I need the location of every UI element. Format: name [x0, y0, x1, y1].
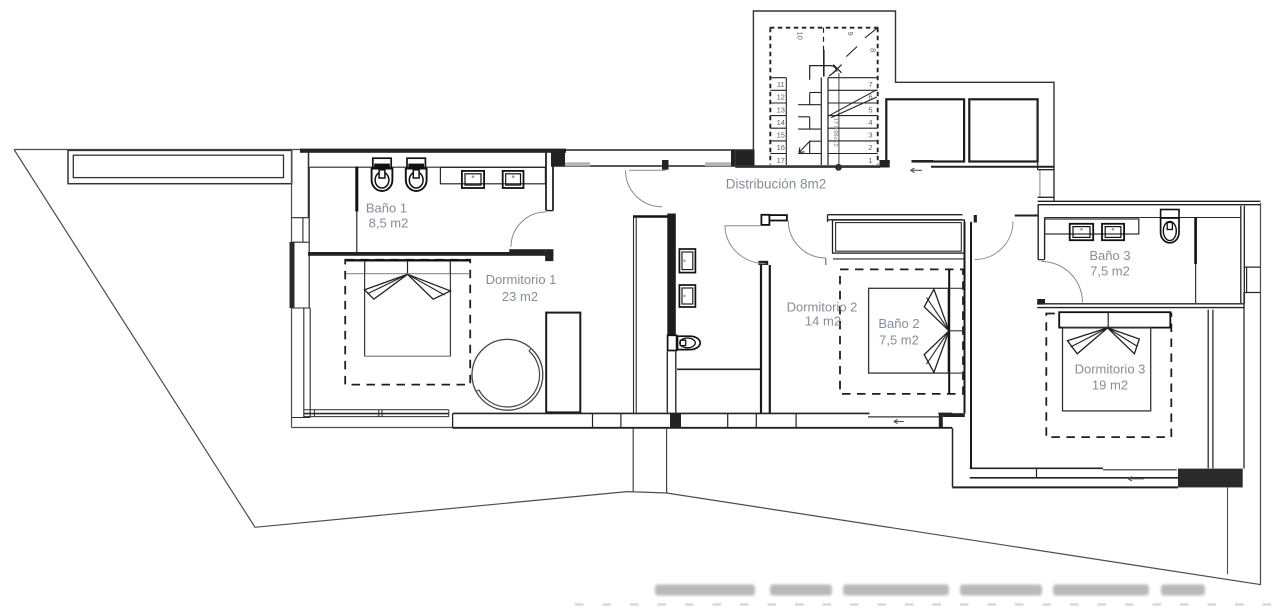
svg-text:17: 17	[777, 156, 785, 165]
svg-text:16: 16	[777, 143, 785, 152]
svg-text:1: 1	[868, 156, 872, 165]
svg-text:13: 13	[777, 105, 785, 114]
svg-text:8: 8	[869, 48, 878, 52]
svg-text:14 m2: 14 m2	[805, 314, 841, 329]
svg-text:12: 12	[777, 93, 785, 102]
svg-text:3: 3	[868, 131, 872, 140]
svg-text:Distribución 8m2: Distribución 8m2	[726, 177, 827, 192]
svg-text:4: 4	[868, 118, 872, 127]
svg-text:11: 11	[777, 80, 785, 89]
svg-text:14: 14	[777, 118, 785, 127]
svg-text:9: 9	[846, 32, 855, 36]
svg-text:7,5 m2: 7,5 m2	[1090, 264, 1130, 279]
svg-text:15: 15	[777, 131, 785, 140]
svg-text:7,5 m2: 7,5 m2	[879, 333, 919, 348]
svg-text:Baño 2: Baño 2	[878, 316, 919, 331]
svg-text:Dormitorio 3: Dormitorio 3	[1075, 362, 1146, 377]
svg-text:5: 5	[868, 105, 872, 114]
svg-text:Dormitorio 2: Dormitorio 2	[787, 300, 858, 315]
svg-text:7: 7	[868, 80, 872, 89]
svg-text:Dormitorio 1: Dormitorio 1	[486, 272, 557, 287]
svg-text:23 m2: 23 m2	[502, 289, 538, 304]
svg-text:17 0,66x3,2: 17 0,66x3,2	[832, 118, 838, 147]
svg-text:10: 10	[796, 32, 805, 40]
svg-text:Baño 3: Baño 3	[1089, 248, 1130, 263]
svg-text:Baño 1: Baño 1	[366, 201, 407, 216]
svg-text:8,5 m2: 8,5 m2	[369, 216, 409, 231]
svg-text:19 m2: 19 m2	[1092, 378, 1128, 393]
svg-text:6: 6	[868, 93, 872, 102]
svg-text:2: 2	[868, 143, 872, 152]
